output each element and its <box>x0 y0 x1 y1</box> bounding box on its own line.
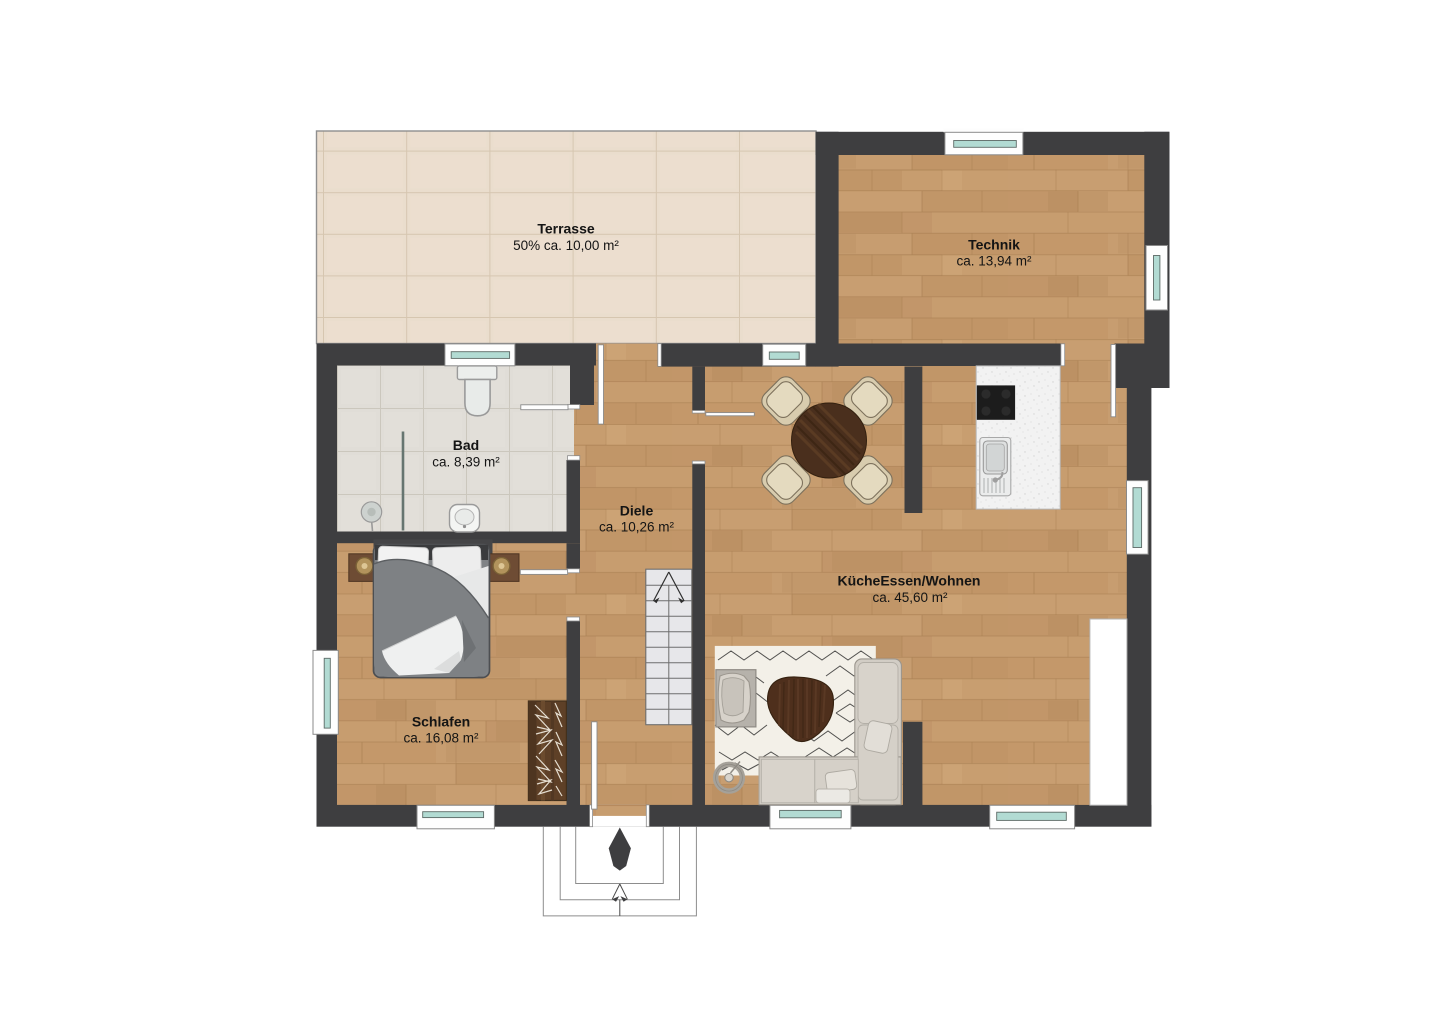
svg-text:ca. 45,60 m²: ca. 45,60 m² <box>872 590 948 605</box>
svg-text:Bad: Bad <box>453 437 479 453</box>
svg-text:Technik: Technik <box>968 237 1020 253</box>
svg-text:50% ca. 10,00 m²: 50% ca. 10,00 m² <box>513 238 619 253</box>
svg-text:Schlafen: Schlafen <box>412 714 470 730</box>
svg-text:Terrasse: Terrasse <box>537 221 595 237</box>
svg-text:ca. 13,94 m²: ca. 13,94 m² <box>956 254 1032 269</box>
svg-text:KücheEssen/Wohnen: KücheEssen/Wohnen <box>838 573 981 589</box>
svg-text:ca. 16,08 m²: ca. 16,08 m² <box>403 731 479 746</box>
svg-text:ca. 8,39 m²: ca. 8,39 m² <box>432 454 500 469</box>
svg-text:ca. 10,26 m²: ca. 10,26 m² <box>599 520 675 535</box>
svg-text:Diele: Diele <box>620 503 654 519</box>
